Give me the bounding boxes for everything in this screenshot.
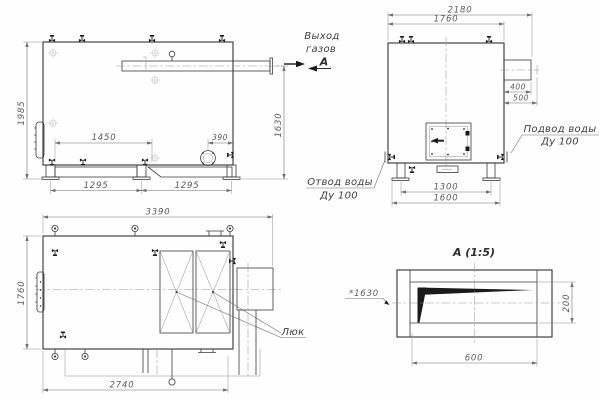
support-skid-side: [42, 165, 240, 179]
safety-valve-icons-front: [399, 37, 492, 43]
boiler-body-side: [43, 42, 233, 165]
dim-height-flue: 1630: [241, 66, 288, 179]
dim-1295-right-text: 1295: [175, 181, 200, 191]
section-body: [392, 263, 560, 344]
sensor-pocket-icon: [169, 379, 175, 385]
dim-section-height: 200: [539, 282, 576, 323]
section-letter-text: А: [319, 56, 329, 69]
blowdown-valve-icon: [409, 166, 415, 172]
side-view: 1985 1630 1450 390 1295 1295 Выход газо: [17, 31, 340, 194]
front-view: 2180 1760 400 500 1300 1600: [306, 6, 599, 207]
elevation-1630-text: *1630: [349, 289, 379, 299]
elevation-annotation: *1630: [345, 289, 390, 305]
water-inlet-dn-text: Ду 100: [540, 137, 579, 148]
water-outlet-dn-text: Ду 100: [319, 191, 358, 202]
water-inlet-text: Подвод воды: [524, 124, 597, 135]
water-outlet-flange: [385, 152, 394, 163]
support-base-front: [392, 163, 500, 180]
dim-base-spans: 1295 1295: [51, 181, 232, 194]
dim-500-text: 500: [513, 94, 529, 103]
top-flange-stub: [206, 231, 224, 236]
dim-flange-offset: 390: [208, 133, 233, 150]
water-inlet-label: Подвод воды Ду 100: [511, 124, 599, 153]
water-outlet-text: Отвод воды: [307, 177, 373, 188]
dim-width-overall: 2180: [388, 6, 532, 58]
section-title-text: А (1:5): [452, 246, 495, 259]
vent-icon: [169, 51, 175, 57]
dim-1300-text: 1300: [434, 183, 459, 193]
dim-600-text: 600: [465, 354, 484, 364]
dim-duct-overall: 500: [504, 77, 537, 106]
elevation-arrow-icon: [384, 300, 389, 305]
dim-1450-text: 1450: [92, 133, 117, 143]
dim-1600-text: 1600: [434, 194, 459, 204]
dim-3390-text: 3390: [146, 208, 171, 218]
water-outlet-label: Отвод воды Ду 100: [306, 160, 385, 202]
weld-seam-horizontal: [418, 288, 534, 296]
technical-drawing: 1985 1630 1450 390 1295 1295 Выход газо: [0, 0, 600, 400]
dim-1295-left-text: 1295: [84, 181, 109, 191]
dim-section-width: 600: [412, 333, 537, 367]
dim-height-overall: 1985: [17, 42, 44, 179]
door-hinge-icon: [466, 147, 470, 152]
pipe-flange-icon: [201, 151, 216, 166]
drawing-sheet: 1985 1630 1450 390 1295 1295 Выход газо: [0, 0, 600, 400]
dim-length-overall: 3390: [43, 208, 273, 267]
base-outline-plan: [65, 349, 260, 385]
flue-duct-side: [116, 51, 284, 74]
dim-400-text: 400: [510, 83, 526, 92]
flue-duct-front: [500, 60, 539, 80]
position-crosshair-icons: [48, 48, 160, 163]
dim-span-top: 1450: [55, 133, 152, 162]
section-arrow-icon: [308, 66, 317, 72]
dim-1760-plan-text: 1760: [17, 281, 27, 306]
dim-base-length: 2740: [43, 351, 228, 393]
dim-1630-text: 1630: [274, 113, 284, 138]
boiler-body-plan: [43, 236, 233, 349]
hatch-text: Люк: [281, 327, 305, 338]
section-a-arrow: А: [308, 56, 331, 72]
safety-valve-icons: [49, 36, 225, 42]
dim-1760-text: 1760: [434, 15, 459, 25]
gas-outlet-text-2: газов: [306, 44, 336, 55]
dim-200-text: 200: [562, 294, 572, 313]
water-inlet-flange: [498, 152, 507, 163]
furnace-door: [426, 123, 471, 160]
gas-flow-arrow-icon: [296, 61, 305, 67]
gas-outlet-text-1: Выход: [304, 31, 339, 42]
door-handle-arrow-icon: [431, 138, 444, 144]
dim-1985-text: 1985: [17, 101, 27, 126]
plan-view: Люк 3390 1760: [17, 208, 306, 394]
section-view: А (1:5) *1630 600 200: [345, 246, 576, 367]
gas-outlet-label: Выход газов: [284, 31, 340, 67]
weld-seam-vertical: [418, 288, 427, 323]
dim-390-text: 390: [212, 133, 228, 142]
dim-2740-text: 2740: [110, 381, 135, 391]
door-hinge-icon: [466, 131, 470, 136]
lifting-bolt-icons: [52, 225, 233, 359]
